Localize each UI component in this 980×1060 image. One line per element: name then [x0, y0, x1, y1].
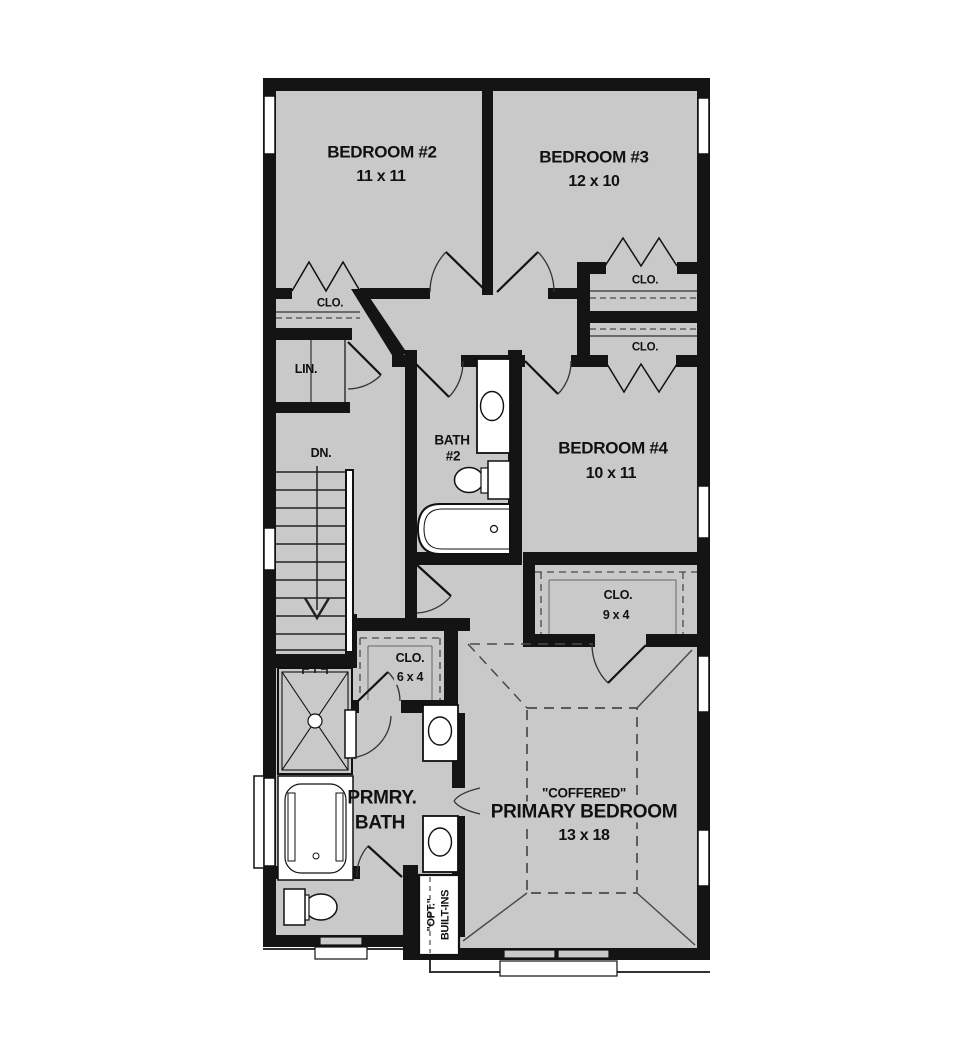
primary-vanity-1-icon — [423, 705, 458, 761]
primary-ceiling-label: "COFFERED" — [539, 785, 629, 801]
primary-bedroom-label: PRIMARY BEDROOM — [488, 802, 681, 823]
bath2-label: BATH — [434, 433, 469, 447]
bedroom2-dims: 11 x 11 — [356, 169, 406, 185]
floor-plan-drawing — [0, 0, 980, 1060]
primary-bath-label-1: PRMRY. — [347, 789, 416, 808]
bedroom3-dims: 12 x 10 — [568, 174, 619, 190]
window-bedroom3 — [698, 98, 709, 154]
floor-plan: BEDROOM #2 11 x 11 BEDROOM #3 12 x 10 BE… — [0, 0, 980, 1060]
hall-closet-label: CLO. — [393, 651, 428, 666]
optional-builtins-line2: BUILT-INS — [439, 890, 453, 940]
window-bedroom4 — [698, 486, 709, 538]
hall-closet-dims: 6 x 4 — [394, 670, 426, 685]
bedroom4-label: BEDROOM #4 — [558, 440, 667, 457]
bedroom3-closet-label: CLO. — [632, 275, 658, 287]
window-stairs — [264, 528, 275, 570]
bedroom2-closet-label: CLO. — [317, 298, 343, 310]
primary-tub-icon — [278, 776, 353, 880]
bedroom2-label: BEDROOM #2 — [327, 144, 436, 161]
stair-rail — [346, 470, 353, 652]
linen-closet-label: LIN. — [295, 363, 317, 376]
bedroom3-label: BEDROOM #3 — [539, 149, 648, 166]
primary-vanity-2-icon — [423, 816, 458, 872]
bath2-tub-icon — [418, 504, 510, 554]
optional-builtins-line1: "OPT." — [425, 890, 439, 940]
window-primary-bath — [264, 778, 275, 866]
walkin-closet-label: CLO. — [604, 589, 633, 602]
bedroom4-closet-label: CLO. — [632, 342, 658, 354]
window-bedroom2 — [264, 96, 275, 154]
shower-icon — [278, 668, 352, 774]
primary-bath-label-2: BATH — [355, 814, 405, 833]
bedroom4-dims: 10 x 11 — [586, 466, 636, 482]
walkin-closet-dims: 9 x 4 — [603, 609, 629, 622]
optional-builtins-label: "OPT." BUILT-INS — [425, 890, 454, 940]
bath2-number: #2 — [446, 449, 460, 463]
window-primary-1 — [698, 656, 709, 712]
window-sill-bath — [254, 776, 264, 868]
window-primary-2 — [698, 830, 709, 886]
bath2-vanity-icon — [477, 359, 510, 453]
stairs-down-label: DN. — [311, 447, 332, 460]
primary-bedroom-dims: 13 x 18 — [555, 827, 612, 845]
